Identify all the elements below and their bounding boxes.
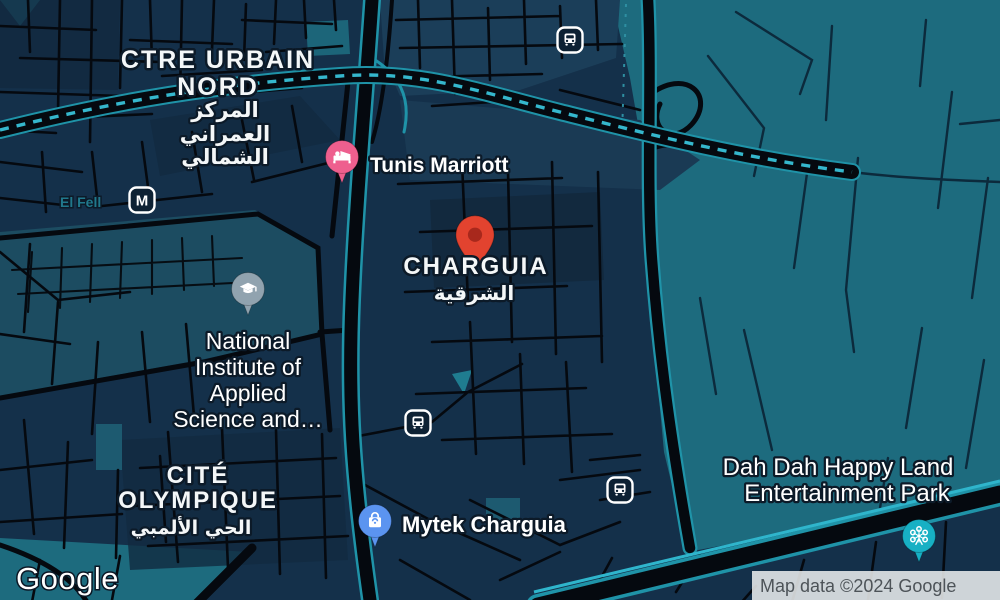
poi-label-tunis-marriott[interactable]: Tunis Marriott — [370, 154, 508, 177]
map-canvas[interactable]: El Fell — [0, 0, 1000, 600]
map-screenshot: El Fell — [0, 0, 1000, 600]
svg-text:NORD: NORD — [177, 73, 259, 101]
svg-text:الشمالي: الشمالي — [181, 145, 269, 169]
metro-m-icon: M — [136, 193, 149, 210]
svg-text:Map data ©2024 Google: Map data ©2024 Google — [760, 576, 956, 596]
bus-station-icon[interactable] — [558, 28, 583, 53]
bus-station-icon[interactable] — [406, 411, 431, 436]
svg-text:Dah Dah Happy Land: Dah Dah Happy Land — [723, 454, 954, 481]
svg-text:المركز: المركز — [190, 98, 259, 122]
svg-text:Institute of: Institute of — [195, 354, 302, 380]
svg-text:الشرقية: الشرقية — [434, 281, 515, 305]
svg-text:National: National — [206, 328, 290, 354]
google-logo[interactable]: Google — [16, 561, 119, 596]
map-attribution: Map data ©2024 Google — [752, 571, 1000, 600]
poi-label-dah-dah-happy-land[interactable]: Dah Dah Happy Land Entertainment Park — [723, 454, 954, 507]
svg-text:CHARGUIA: CHARGUIA — [403, 253, 548, 280]
svg-text:العمراني: العمراني — [180, 122, 270, 146]
svg-text:CITÉ: CITÉ — [167, 461, 230, 489]
svg-text:OLYMPIQUE: OLYMPIQUE — [118, 487, 278, 514]
svg-text:Entertainment Park: Entertainment Park — [744, 480, 950, 507]
poi-label-mytek-charguia[interactable]: Mytek Charguia — [402, 512, 567, 537]
svg-text:الحي الألمبي: الحي الألمبي — [131, 516, 252, 539]
svg-text:Applied: Applied — [210, 380, 287, 406]
svg-text:Science and…: Science and… — [173, 406, 323, 432]
bus-station-icon[interactable] — [608, 478, 633, 503]
station-label-el-fell: El Fell — [60, 194, 101, 210]
svg-text:CTRE URBAIN: CTRE URBAIN — [121, 46, 315, 74]
metro-station-icon[interactable]: M — [130, 188, 155, 213]
